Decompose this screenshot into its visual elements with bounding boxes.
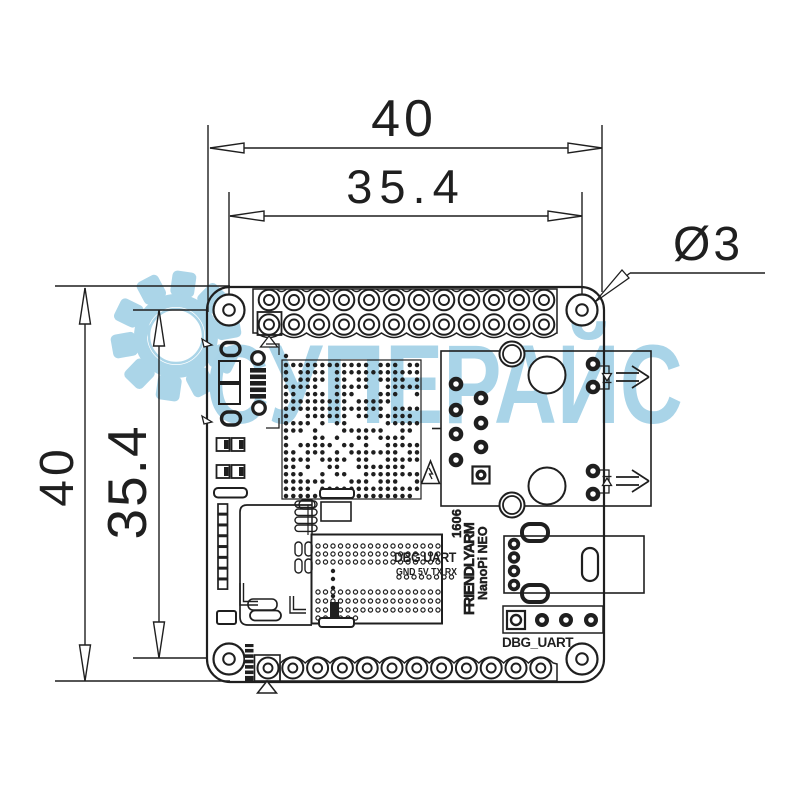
svg-text:40: 40 [371, 90, 437, 148]
svg-text:35.4: 35.4 [96, 424, 158, 539]
svg-text:DBG_UART: DBG_UART [502, 635, 574, 650]
svg-text:GND 5V TX RX: GND 5V TX RX [396, 565, 458, 577]
svg-text:40: 40 [31, 445, 84, 506]
svg-text:DBG UART: DBG UART [394, 550, 456, 566]
svg-text:NanoPi NEO: NanoPi NEO [476, 526, 490, 600]
svg-text:Ø3: Ø3 [673, 218, 743, 271]
svg-text:35.4: 35.4 [346, 160, 465, 213]
